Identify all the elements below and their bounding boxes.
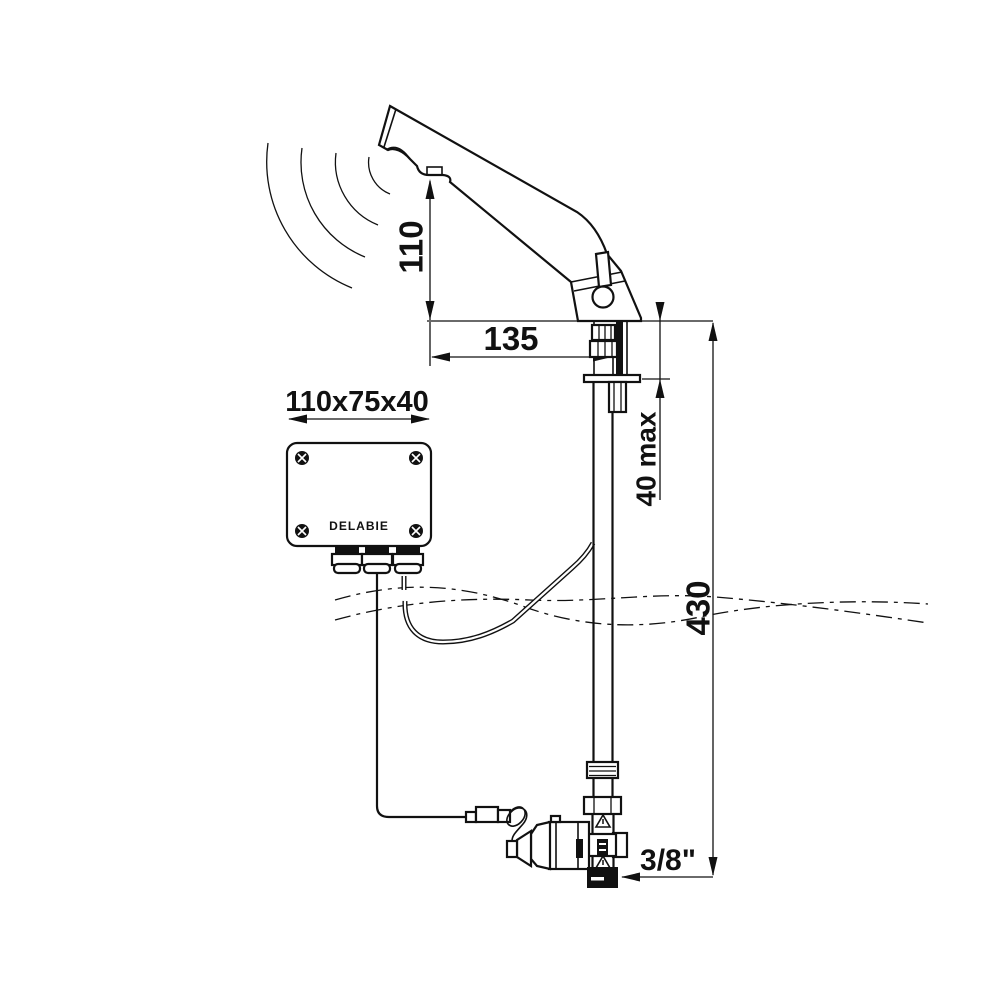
valve-left-cap: [531, 822, 550, 869]
tap-knob: [593, 287, 614, 308]
cable-connector: [466, 807, 510, 822]
sensor-wave-icon: [369, 157, 390, 194]
hex-nut: [584, 797, 621, 814]
arrowhead-down-icon: [426, 301, 435, 320]
dim-38-label: 3/8": [640, 844, 696, 877]
arrowhead-down-icon: [709, 857, 718, 876]
arrowhead-up-icon: [426, 179, 435, 199]
control-box-brand-label: DELABIE: [329, 519, 389, 533]
break-line-upper: [335, 587, 928, 625]
cable-gland: [332, 546, 362, 573]
cable-gland: [362, 546, 392, 573]
break-line-lower: [335, 596, 928, 623]
inlet-fitting-3-8: [587, 867, 618, 888]
flow-direction-icon: [596, 856, 610, 868]
technical-drawing: 110 135 110x75x40 DELABIE 40 max 430 3/8…: [0, 0, 1000, 1000]
arrowhead-up-icon: [656, 379, 665, 398]
screw-icon: [409, 451, 423, 465]
sensor-cable-conduit: [616, 322, 623, 375]
control-box: [287, 443, 431, 573]
drawing-canvas: 110 135 110x75x40 DELABIE 40 max 430 3/8…: [0, 0, 1000, 1000]
valve-top-notch: [551, 816, 560, 822]
sensor-cable: [404, 543, 593, 642]
dim-40max-label: 40 max: [631, 411, 662, 506]
threaded-stub: [609, 382, 626, 412]
sensor-waves: [267, 143, 390, 288]
control-box-size-label: 110x75x40: [285, 386, 429, 418]
arrowhead-left-icon: [621, 873, 640, 882]
screw-icon: [409, 524, 423, 538]
valve-brand-label: DELABIE: [578, 840, 582, 856]
cable-gland: [393, 546, 423, 573]
flow-direction-icon: [596, 815, 610, 827]
dim-430-label: 430: [680, 580, 717, 635]
valve-nipple: [507, 841, 517, 857]
supply-pipe: [594, 381, 613, 762]
sensor-wave-icon: [335, 153, 378, 225]
arrowhead-up-icon: [709, 322, 718, 341]
sensor-wave-icon: [301, 148, 365, 257]
shank-backnut: [590, 341, 617, 357]
valve-cone: [517, 831, 531, 866]
dim-135-label: 135: [483, 320, 538, 357]
supply-pipe: [594, 778, 613, 797]
screw-icon: [295, 451, 309, 465]
dim-110-label: 110: [393, 220, 430, 273]
sensor-tap: [379, 106, 641, 321]
sensor-wave-icon: [267, 143, 352, 288]
tap-stop-pin: [596, 252, 611, 287]
cable-glands: [332, 546, 423, 573]
arrowhead-down-icon: [656, 302, 665, 321]
arrowhead-left-icon: [431, 353, 450, 362]
screw-icon: [295, 524, 309, 538]
worktop-break-lines: [335, 587, 928, 625]
valve-cable: [377, 573, 466, 817]
tee-logo-mark: [597, 839, 608, 856]
